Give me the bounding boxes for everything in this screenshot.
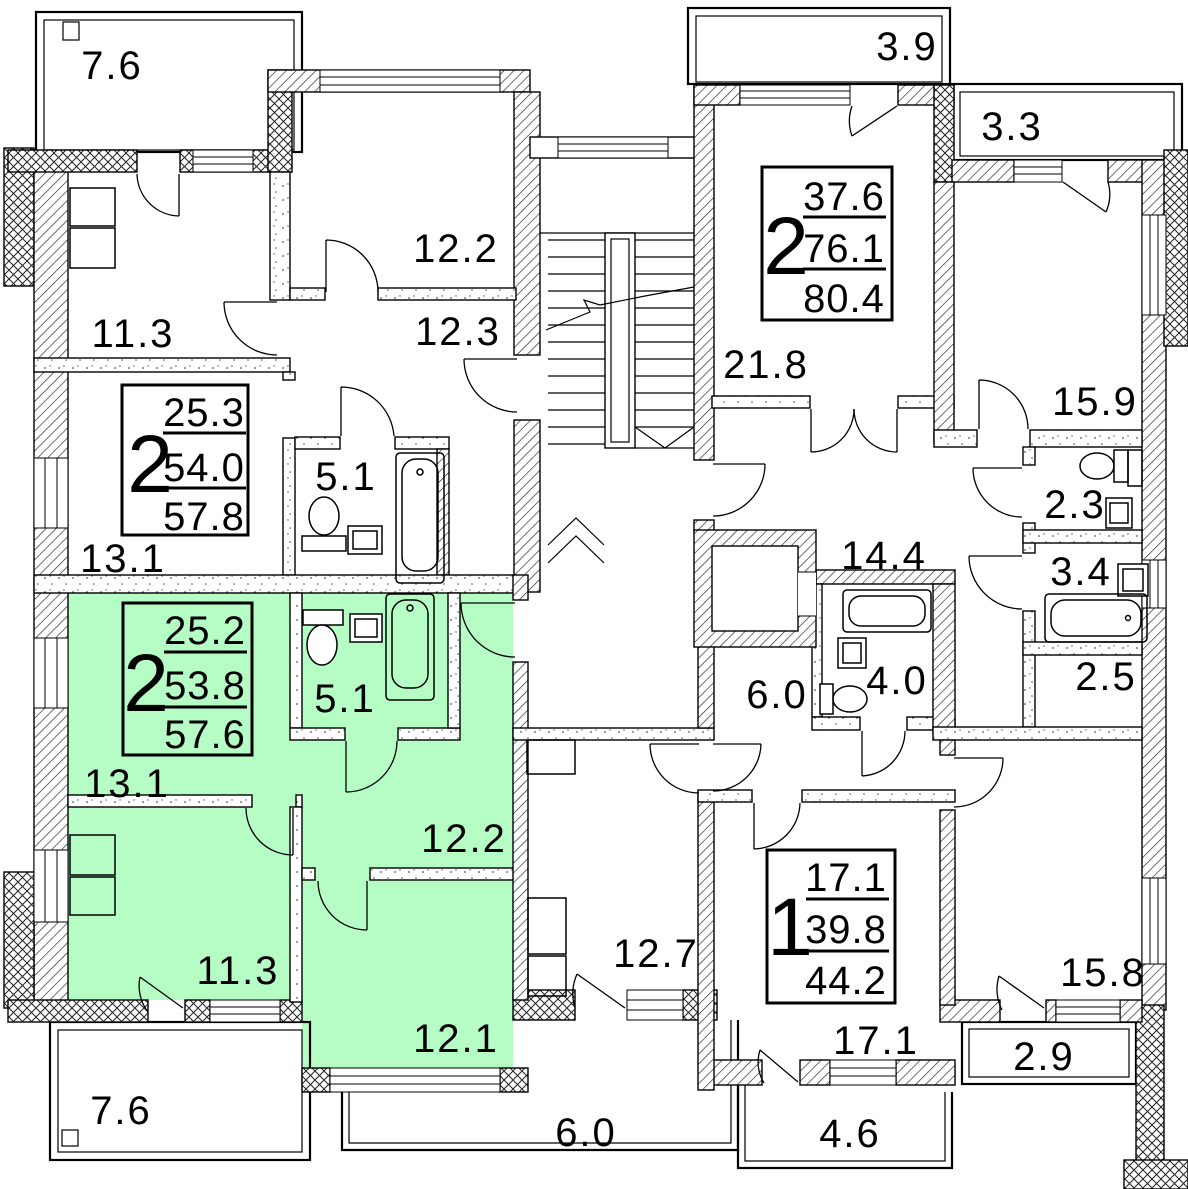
apartment-living-area: 17.1: [805, 856, 887, 900]
apartment-area: 54.0: [163, 446, 245, 490]
balcony-top-left: [36, 12, 302, 152]
label-room-12-3-upper: 12.3: [415, 310, 501, 354]
label-room-12-2-green: 12.2: [421, 817, 507, 861]
label-balcony-3-3: 3.3: [981, 105, 1043, 149]
label-room-13-1-green: 13.1: [84, 762, 170, 806]
label-hall-6-0: 6.0: [746, 673, 808, 717]
label-balcony-top-left: 7.6: [81, 44, 143, 88]
label-storage-2-5: 2.5: [1075, 655, 1137, 699]
apartment-total-area: 80.4: [803, 277, 885, 321]
floor-plan-page: 2 25.3 54.0 57.8 2 25.2 53.8 57.6 2 37.6…: [0, 0, 1188, 1189]
bathtub-icon: [843, 590, 931, 632]
label-balcony-2-9: 2.9: [1013, 1035, 1075, 1079]
label-room-11-3-green: 11.3: [197, 949, 280, 993]
label-bath-5-1-upper: 5.1: [315, 455, 377, 499]
apartment-table-lower-right: 1 17.1 39.8 44.2: [767, 850, 895, 1003]
elevator-shaft: [694, 530, 816, 647]
apartment-table-upper-left: 2 25.3 54.0 57.8: [122, 385, 248, 539]
staircase: [540, 233, 694, 563]
apartment-total-area: 44.2: [805, 959, 887, 1003]
label-corridor-14-4: 14.4: [841, 534, 927, 578]
label-balcony-6-0: 6.0: [555, 1111, 617, 1155]
toilet-icon: [820, 684, 867, 714]
apartment-total-area: 57.6: [164, 713, 246, 757]
label-room-15-8: 15.8: [1060, 951, 1146, 995]
sink-icon: [1118, 564, 1148, 596]
sink-icon: [348, 526, 382, 554]
balcony-bottom-left: [50, 1022, 310, 1160]
label-bath-3-4: 3.4: [1050, 550, 1112, 594]
apartment-living-area: 25.2: [164, 609, 246, 653]
label-wc-2-3: 2.3: [1044, 483, 1106, 527]
sink-icon: [1106, 498, 1132, 528]
label-balcony-3-9: 3.9: [876, 25, 938, 69]
label-room-11-3-upper: 11.3: [92, 312, 175, 356]
bathtub-icon: [1045, 594, 1147, 642]
apartment-rooms-count: 2: [123, 638, 169, 729]
label-room-12-2-upper: 12.2: [413, 227, 499, 271]
label-bath-5-1-green: 5.1: [314, 677, 376, 721]
apartment-table-upper-right: 2 37.6 76.1 80.4: [762, 167, 892, 321]
sink-icon: [838, 638, 866, 668]
apartment-living-area: 37.6: [803, 175, 885, 219]
label-balcony-bottom-left: 7.6: [90, 1089, 152, 1133]
label-room-21-8: 21.8: [723, 343, 809, 387]
label-bath-4-0: 4.0: [866, 659, 928, 703]
apartment-rooms-count: 2: [763, 201, 809, 292]
apartment-area: 53.8: [164, 664, 246, 708]
apartment-area: 39.8: [805, 908, 887, 952]
label-balcony-4-6: 4.6: [819, 1112, 881, 1156]
sink-icon: [350, 614, 382, 642]
apartment-table-green: 2 25.2 53.8 57.6: [123, 603, 252, 757]
label-room-13-1-upper: 13.1: [80, 537, 166, 581]
label-room-12-1-green: 12.1: [413, 1017, 499, 1061]
apartment-total-area: 57.8: [163, 495, 245, 539]
floor-plan-drawing: 2 25.3 54.0 57.8 2 25.2 53.8 57.6 2 37.6…: [0, 0, 1188, 1189]
label-room-12-7: 12.7: [613, 932, 699, 976]
toilet-icon: [1080, 450, 1128, 482]
toilet-icon: [302, 497, 346, 551]
apartment-area: 76.1: [803, 227, 885, 271]
label-room-17-1: 17.1: [833, 1019, 919, 1063]
label-room-15-9: 15.9: [1052, 380, 1138, 424]
apartment-living-area: 25.3: [163, 391, 245, 435]
